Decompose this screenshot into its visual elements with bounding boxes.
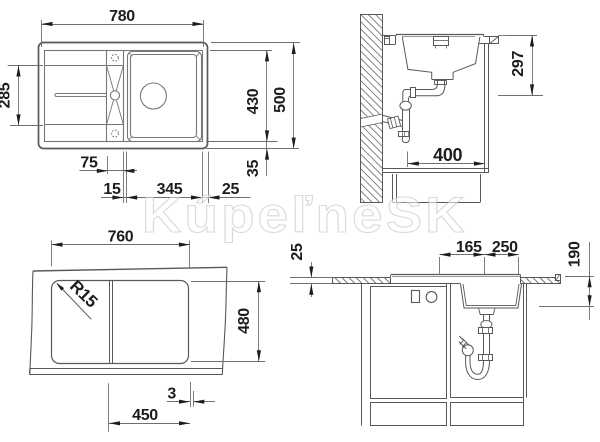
svg-text:KúpeľneSK: KúpeľneSK: [142, 188, 468, 243]
svg-text:35: 35: [245, 160, 262, 178]
svg-text:285: 285: [0, 82, 14, 108]
svg-text:297: 297: [510, 51, 527, 77]
svg-text:480: 480: [236, 308, 253, 334]
svg-text:3: 3: [167, 386, 176, 403]
svg-text:780: 780: [109, 8, 135, 25]
svg-text:500: 500: [272, 87, 289, 113]
svg-text:15: 15: [103, 181, 121, 198]
svg-text:250: 250: [492, 239, 518, 256]
svg-text:25: 25: [289, 243, 306, 261]
svg-text:75: 75: [80, 155, 98, 172]
svg-text:400: 400: [433, 145, 462, 165]
svg-text:190: 190: [567, 241, 584, 267]
svg-text:760: 760: [108, 229, 134, 246]
svg-text:430: 430: [245, 88, 262, 114]
svg-text:450: 450: [132, 407, 158, 424]
